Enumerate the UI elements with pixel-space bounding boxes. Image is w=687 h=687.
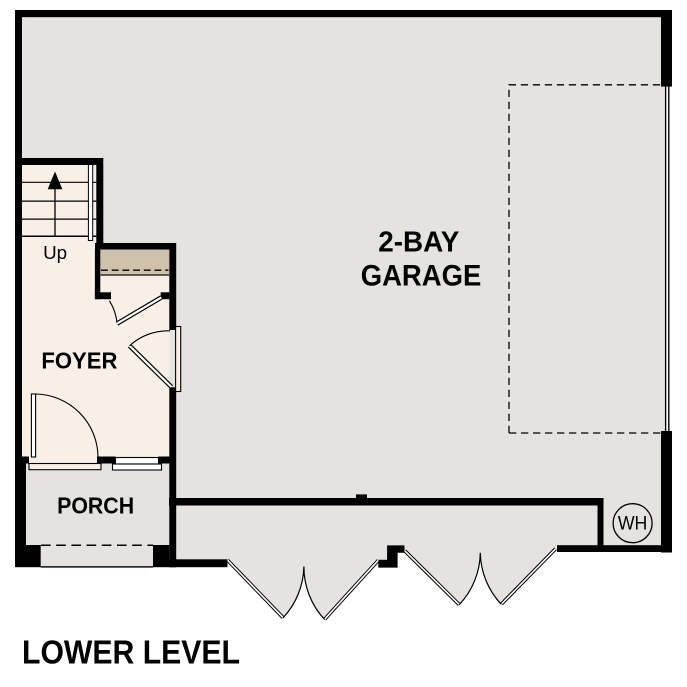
svg-text:2-BAY: 2-BAY (378, 227, 459, 259)
svg-text:PORCH: PORCH (57, 493, 134, 519)
svg-text:GARAGE: GARAGE (361, 260, 482, 292)
svg-text:LOWER LEVEL: LOWER LEVEL (22, 635, 240, 672)
svg-text:FOYER: FOYER (41, 348, 117, 374)
svg-text:WH: WH (618, 514, 648, 535)
svg-text:Up: Up (43, 242, 67, 263)
